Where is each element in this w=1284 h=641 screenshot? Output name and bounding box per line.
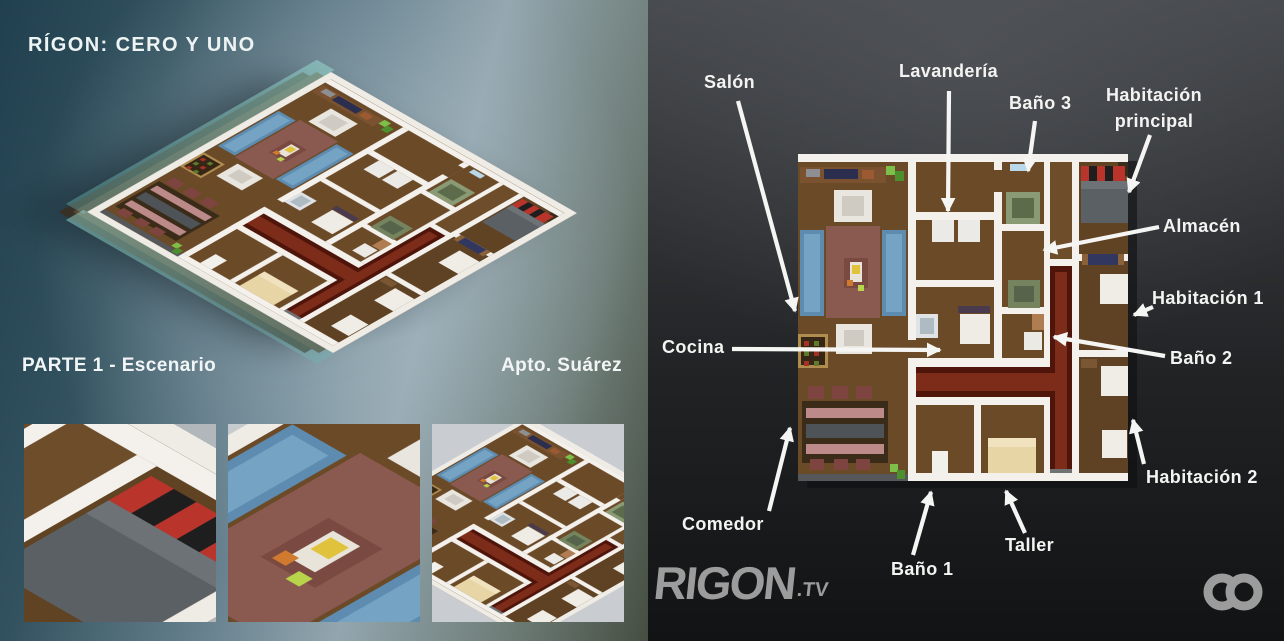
wall-laundry-kitchen	[320, 178, 380, 212]
rigon-tv-logo: RIGON .TV	[652, 560, 832, 606]
rigon-logo-text: RIGON	[652, 560, 798, 606]
label-lavanderia: Lavandería	[899, 61, 998, 82]
thumbnail-livingroom-closeup	[228, 424, 420, 622]
door-bano3	[616, 491, 624, 501]
label-bano3: Baño 3	[1009, 93, 1071, 114]
apartment-name: Apto. Suárez	[501, 355, 622, 377]
label-habitacion-principal-line1: Habitación	[1106, 85, 1202, 105]
label-salon: Salón	[704, 72, 755, 93]
slide: RÍGON: CERO Y UNO PARTE 1 - Escenario Ap…	[0, 0, 1284, 641]
label-taller: Taller	[1005, 535, 1054, 556]
thumbnail-3-render	[432, 424, 624, 622]
label-habitacion-principal: Habitación principal	[1097, 82, 1211, 134]
label-almacen: Almacén	[1163, 216, 1241, 237]
part-label: PARTE 1 - Escenario	[22, 355, 216, 377]
co-logo-icon	[1200, 566, 1266, 618]
door-bano3	[443, 165, 464, 177]
right-panel: Salón Lavandería Baño 3 Habitación princ…	[648, 0, 1284, 641]
label-habitacion2: Habitación 2	[1146, 467, 1258, 488]
floor-plan-graphic	[432, 424, 624, 622]
floor-plan-graphic	[228, 424, 420, 622]
page-title: RÍGON: CERO Y UNO	[28, 34, 256, 57]
bano1-door	[432, 562, 444, 574]
dining-chair-t3	[432, 516, 437, 525]
left-panel: RÍGON: CERO Y UNO PARTE 1 - Escenario Ap…	[0, 0, 648, 641]
thumbnail-1-render	[24, 424, 216, 622]
label-comedor: Comedor	[682, 514, 764, 535]
thumbnail-2-render	[228, 424, 420, 622]
thumbnail-overview	[432, 424, 624, 622]
label-habitacion1: Habitación 1	[1152, 288, 1264, 309]
thumbnail-bedroom-closeup	[24, 424, 216, 622]
label-bano2: Baño 2	[1170, 348, 1232, 369]
wall-laundry-kitchen	[518, 501, 566, 529]
rigon-logo-suffix: .TV	[796, 579, 830, 602]
label-bano1: Baño 1	[891, 559, 953, 580]
label-cocina: Cocina	[662, 337, 724, 358]
floor-plan-graphic	[24, 424, 216, 622]
apartment-3d-render	[58, 14, 598, 414]
label-habitacion-principal-line2: principal	[1115, 111, 1194, 131]
